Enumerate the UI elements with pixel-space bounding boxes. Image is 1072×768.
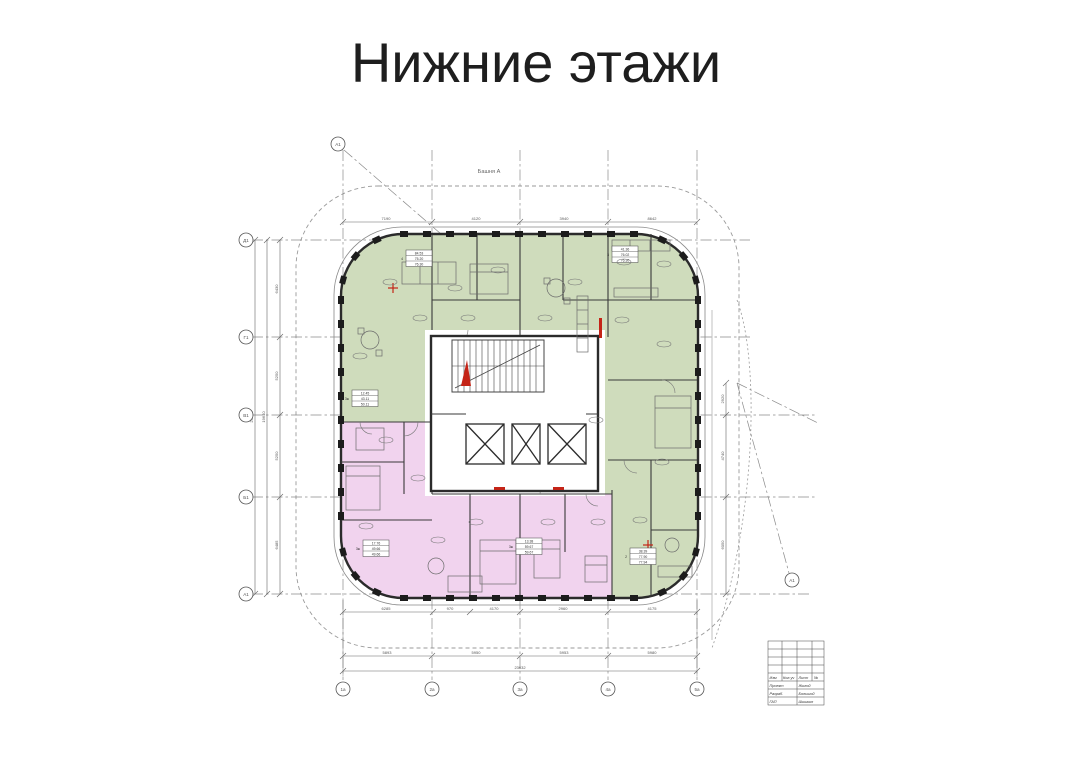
window-pier [607,231,615,237]
unit-prefix: 3ж [509,545,514,549]
window-pier [538,595,546,601]
unit-area: 38.39 [639,549,648,553]
unit-area: 77.90 [639,555,648,559]
dim-label: 2920 [720,394,725,404]
dim-label: 2960 [559,606,569,611]
window-pier [584,231,592,237]
window-pier [695,296,701,304]
building-label: Башня А [478,169,501,175]
unit-prefix: 3ж [356,547,361,551]
dim-label: 4740 [720,451,725,461]
window-pier [584,595,592,601]
titleblock-cell: ГАП [770,700,777,704]
unit-area: 59.67 [525,545,534,549]
titleblock-cell: Проект [770,684,784,688]
axis-label: 3а [517,687,523,692]
window-pier [695,464,701,472]
dim-label: 7190 [382,216,392,221]
dim-label: 6485 [274,540,279,550]
titleblock-header: № [814,676,818,680]
dim-label: 970 [447,606,454,611]
window-pier [695,440,701,448]
axis-label: А1 [243,592,249,597]
window-pier [607,595,615,601]
floor-plan-drawing: 7190 4120 3940 8642 6285 970 4170 2960 4… [0,0,1072,768]
window-pier [446,595,454,601]
unit-area: 49.66 [372,547,381,551]
titleblock-cell: Жилой [798,684,812,688]
axis-label: А1 [335,142,341,147]
titleblock-header: Кол.уч [783,676,794,680]
dim-label: 23632 [514,665,526,670]
unit-area: 75.20 [415,257,424,261]
unit-area: 59.67 [525,550,534,554]
dim-label: 3940 [560,216,570,221]
titleblock-header: Лист [798,676,809,680]
unit-prefix: 2 [625,555,627,559]
window-pier [338,320,344,328]
window-pier [515,595,523,601]
unit-area: 77.94 [639,560,648,564]
unit-area: 43.11 [361,397,369,401]
unit-prefix: 3ж [345,397,350,401]
dim-label: 5953 [560,650,570,655]
window-pier [695,344,701,352]
axis-bubbles-bottom: 1а 2а 3а 4а 5а [336,682,704,696]
axis-label: 5а [694,687,700,692]
axis-label: Д1 [243,238,249,243]
axis-label: В1 [243,413,249,418]
window-pier [338,296,344,304]
window-pier [492,595,500,601]
dim-label: 5893 [383,650,393,655]
unit-area: 41.36 [621,247,630,251]
window-pier [630,231,638,237]
window-pier [695,512,701,520]
window-pier [338,416,344,424]
window-pier [338,488,344,496]
core [431,336,598,491]
dim-label: 5980 [648,650,658,655]
window-pier [338,512,344,520]
window-pier [695,392,701,400]
building: 4 84.53 75.20 76.30 3 41.36 76.02 76.30 [334,227,705,605]
axis-label: А1 [789,578,795,583]
unit-area: 13.38 [525,539,534,543]
dim-label: 4175 [648,606,658,611]
axis-label: 4а [605,687,611,692]
window-pier [338,392,344,400]
dim-label: 5250 [274,371,279,381]
titleblock-cell: Большой [799,692,816,696]
window-pier [695,416,701,424]
window-pier [469,595,477,601]
dim-label: 5250 [274,451,279,461]
window-pier [400,231,408,237]
window-pier [400,595,408,601]
window-pier [695,368,701,376]
window-pier [561,231,569,237]
window-pier [695,320,701,328]
axis-label: 2а [429,687,435,692]
window-pier [538,231,546,237]
unit-area: 84.53 [415,251,424,255]
window-pier [423,595,431,601]
axis-bubbles-left: Д1 Г1 В1 Б1 А1 [239,233,253,601]
window-pier [469,231,477,237]
unit-prefix: 4 [401,257,403,261]
dim-label: 4170 [490,606,500,611]
window-pier [423,231,431,237]
unit-area: 12.45 [361,391,370,395]
window-pier [561,595,569,601]
unit-area: 49.66 [372,552,381,556]
title-block: Изм Кол.уч Лист № Проект Жилой Разраб. Б… [768,641,824,705]
axis-label: Б1 [243,495,249,500]
titleblock-cell: Шишкин [799,700,815,704]
window-pier [338,368,344,376]
unit-area: 50.11 [361,402,369,406]
dim-label: 4120 [472,216,482,221]
window-pier [492,231,500,237]
window-pier [338,344,344,352]
dim-label: 6430 [274,284,279,294]
unit-prefix: 3 [607,253,609,257]
slide: Нижние этажи [0,0,1072,768]
titleblock-cell: Разраб. [770,692,784,696]
window-pier [515,231,523,237]
window-pier [695,488,701,496]
window-pier [630,595,638,601]
dim-label: 6050 [720,540,725,550]
window-pier [338,440,344,448]
dim-label: 8642 [648,216,658,221]
window-pier [446,231,454,237]
dim-label: 19640 [261,411,266,423]
titleblock-header: Изм [770,676,777,680]
dim-label: 5950 [472,650,482,655]
axis-label: 1а [340,687,346,692]
axis-label: Г1 [243,335,248,340]
unit-area: 17.76 [372,541,381,545]
dim-label: 6285 [382,606,392,611]
unit-area: 76.02 [621,253,630,257]
elevators [466,424,586,464]
window-pier [338,464,344,472]
unit-area: 76.30 [415,262,424,266]
